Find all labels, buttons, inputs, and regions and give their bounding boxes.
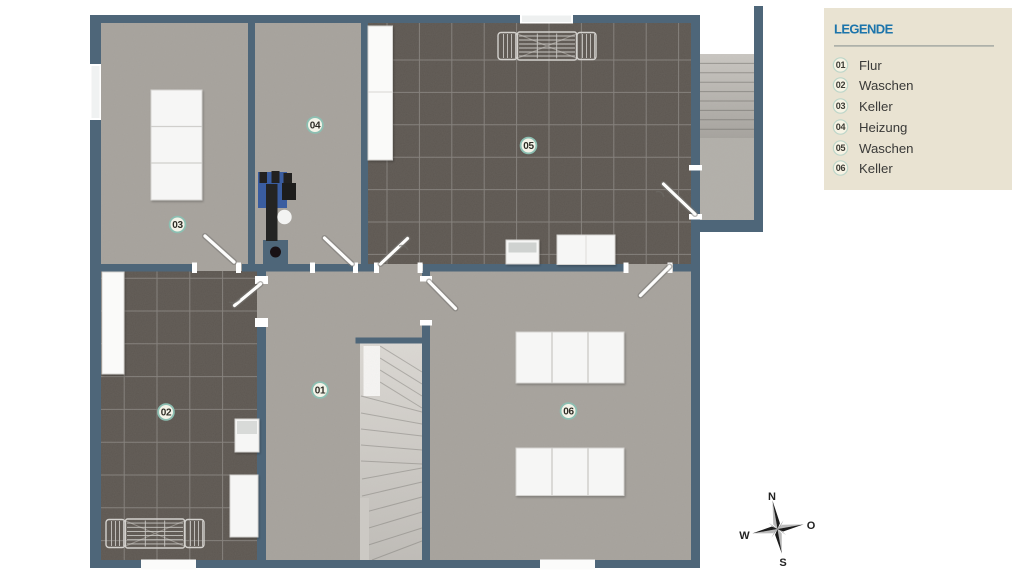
svg-text:01: 01 <box>315 386 326 397</box>
svg-text:02: 02 <box>161 408 172 419</box>
svg-text:01: 01 <box>836 60 846 70</box>
svg-text:06: 06 <box>563 407 574 418</box>
svg-text:05: 05 <box>523 141 534 152</box>
svg-text:05: 05 <box>836 143 846 153</box>
svg-text:04: 04 <box>836 122 846 132</box>
svg-text:03: 03 <box>836 101 846 111</box>
svg-text:02: 02 <box>836 80 846 90</box>
svg-text:O: O <box>807 520 816 532</box>
svg-text:03: 03 <box>172 220 183 231</box>
svg-text:S: S <box>779 557 786 569</box>
svg-text:06: 06 <box>836 163 846 173</box>
svg-text:Keller: Keller <box>859 99 893 114</box>
svg-text:Flur: Flur <box>859 58 882 73</box>
svg-text:LEGENDE: LEGENDE <box>834 22 894 37</box>
svg-text:Keller: Keller <box>859 161 893 176</box>
svg-text:Heizung: Heizung <box>859 120 907 135</box>
svg-text:W: W <box>739 530 750 542</box>
svg-text:N: N <box>768 491 776 503</box>
svg-text:04: 04 <box>310 121 321 132</box>
svg-text:Waschen: Waschen <box>859 141 913 156</box>
svg-text:Waschen: Waschen <box>859 78 913 93</box>
